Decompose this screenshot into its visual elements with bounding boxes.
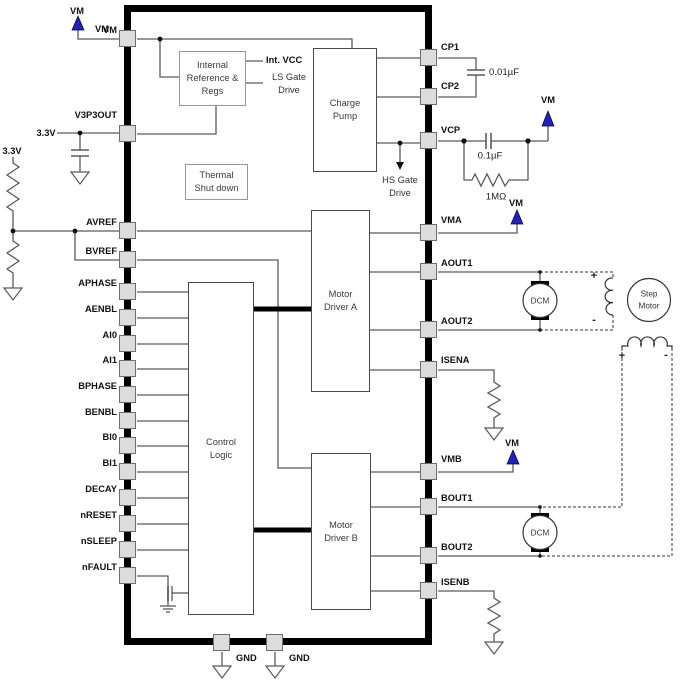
pin-label-aenbl: AENBL [27,304,117,315]
ground-v3p3 [71,172,89,184]
pin-ai1 [119,360,136,377]
motor-driver-b-line2: Driver B [324,532,358,545]
pin-label-aout2: AOUT2 [441,316,473,327]
pin-bphase [119,386,136,403]
pin-cp2 [420,88,437,105]
pin-label-v3p3out: V3P3OUT [27,110,117,121]
isenb-resistor [438,591,500,642]
motor-driver-a-line1: Motor [329,288,353,301]
pin-label-ai0: AI0 [27,330,117,341]
dashed-winding-a-top [540,272,613,278]
dcm-b-label: DCM [531,528,550,538]
pin-label-vcp: VCP [441,125,460,136]
pin-nsleep [119,541,136,558]
charge-pump-line2: Pump [333,110,357,123]
internal-reference-line2: Reference & [187,72,239,85]
pin-aphase [119,283,136,300]
pin-isena [420,361,437,378]
pin-label-decay: DECAY [27,484,117,495]
motor-driver-b-block: Motor Driver B [311,453,371,610]
pin-label-aphase: APHASE [27,278,117,289]
pin-label-nreset: nRESET [27,510,117,521]
pin-label-cp2: CP2 [441,81,459,92]
v33-divider-label: 3.3V [2,146,21,156]
winding-b-plus: + [619,350,625,362]
thermal-shutdown-block: Thermal Shut down [185,164,248,200]
pin-decay [119,489,136,506]
pin-label-bphase: BPHASE [27,381,117,392]
pin-label-gnd2: GND [289,653,310,664]
pin-cp1 [420,49,437,66]
pin-nreset [119,515,136,532]
pin-aout1 [420,263,437,280]
int-vcc-label: Int. VCC [266,55,302,65]
vmb-vm [438,464,513,472]
pin-aout2 [420,321,437,338]
dashed-winding-b-right [540,348,672,556]
step-motor-label-line2: Motor [639,301,660,311]
pin-nfault [119,567,136,584]
vm-vma-label: VM [509,198,523,208]
pin-ai0 [119,335,136,352]
vm-arrow-vma [511,210,523,224]
vcp-res-value: 1MΩ [486,192,507,203]
internal-reference-line1: Internal [197,59,228,72]
pin-label-bout1: BOUT1 [441,493,473,504]
pin-label-isena: ISENA [441,355,469,366]
step-motor-label-line1: Step [641,289,658,299]
vm-arrow-vcp [542,111,554,126]
v33-pin-label: 3.3V [36,128,55,138]
pin-bvref [119,251,136,268]
vm-top-label: VM [70,6,84,16]
ground-gnd2 [266,666,284,678]
dashed-winding-a-bottom [540,315,613,330]
pin-aenbl [119,309,136,326]
pin-v3p3out [119,125,136,142]
pin-benbl [119,412,136,429]
dcm-a-label: DCM [531,296,550,306]
winding-a-plus: + [591,270,597,282]
driver-b-wires [371,472,420,591]
vm-vmb-label: VM [505,438,519,448]
pin-label-cp1: CP1 [441,42,459,53]
pin-bi0 [119,437,136,454]
pin-label-isenb: ISENB [441,577,469,588]
pin-label-ai1: AI1 [27,355,117,366]
pin-label-nfault: nFAULT [27,562,117,573]
pin-bi1 [119,463,136,480]
charge-pump-wires [377,58,420,162]
motor-driver-a-line2: Driver A [324,301,357,314]
pin-label-gnd1: GND [236,653,257,664]
winding-b-coil [622,337,672,348]
pin-isenb [420,582,437,599]
pin-label-vmb: VMB [441,454,462,465]
pin-avref [119,222,136,239]
ls-gate-label-line1: LS Gate [272,72,306,82]
charge-pump-line1: Charge [330,97,361,110]
dashed-winding-b-left [540,348,622,507]
pin-gnd2 [266,634,283,651]
ground-gnd1 [213,666,231,678]
pin-vcp [420,132,437,149]
nfault-fet [137,576,188,612]
pin-label-bout2: BOUT2 [441,542,473,553]
pin-vm [119,30,136,47]
pin-label-bi1: BI1 [27,458,117,469]
pin-vmb [420,463,437,480]
pin-label-avref: AVREF [27,217,117,228]
pin-label-nsleep: nSLEEP [27,536,117,547]
ls-gate-label-line2: Drive [278,85,300,95]
motor-driver-b-line1: Motor [329,519,353,532]
hs-gate-label-line1: HS Gate [382,175,418,185]
charge-pump-block: Charge Pump [313,48,377,172]
pin-label-benbl: BENBL [27,407,117,418]
hs-gate-arrow [396,162,404,170]
cp-cap-value: 0.01µF [489,67,519,78]
pin-label-bvref: BVREF [27,246,117,257]
ground-divider [4,288,22,300]
pin-bout2 [420,547,437,564]
winding-a-coil [605,278,613,315]
thermal-line1: Thermal [199,169,233,182]
pin-label-vma: VMA [441,215,462,226]
step-motor-symbol [628,279,671,322]
vcp-cap-value: 0.1µF [478,151,503,162]
control-logic-line2: Logic [210,449,232,462]
control-logic-block: Control Logic [188,282,254,615]
winding-a-minus: - [592,314,596,326]
control-logic-line1: Control [206,436,236,449]
thermal-line2: Shut down [195,182,239,195]
pin-label-aout1: AOUT1 [441,258,473,269]
pin-label-bi0: BI0 [27,432,117,443]
pin-bout1 [420,498,437,515]
driver-a-wires [370,233,420,370]
block-diagram: Internal Reference & Regs Thermal Shut d… [0,0,680,683]
motor-driver-a-block: Motor Driver A [311,210,370,392]
internal-reference-block: Internal Reference & Regs [179,51,246,106]
control-input-wires [137,292,188,550]
isena-resistor [438,370,500,428]
internal-reference-line3: Regs [202,85,224,98]
ground-isenb [485,642,503,654]
hs-gate-label-line2: Drive [389,188,411,198]
ground-isena [485,428,503,440]
winding-b-minus: - [664,349,668,361]
vm-pin-label: VM [95,24,109,34]
vm-vcp-label: VM [541,95,555,105]
vm-arrow-vmb [507,450,519,464]
pin-vma [420,224,437,241]
pin-gnd1 [213,634,230,651]
